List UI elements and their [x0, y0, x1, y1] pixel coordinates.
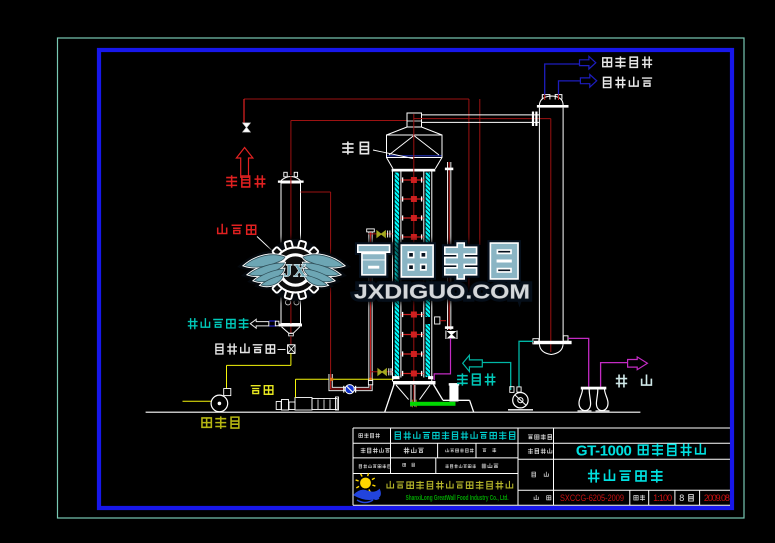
svg-text:JX: JX: [283, 261, 307, 281]
svg-text:8: 8: [679, 493, 684, 503]
svg-text:2009.08: 2009.08: [704, 493, 730, 503]
svg-text:1:100: 1:100: [653, 493, 672, 503]
svg-text:ShanxiLong GreatWall Food Indu: ShanxiLong GreatWall Food Industry Co., …: [406, 493, 509, 502]
svg-text:SXCCG-6205-2009: SXCCG-6205-2009: [560, 493, 624, 503]
svg-text:JXDIGUO.COM: JXDIGUO.COM: [354, 281, 530, 304]
svg-text:GT-1000: GT-1000: [576, 442, 632, 459]
